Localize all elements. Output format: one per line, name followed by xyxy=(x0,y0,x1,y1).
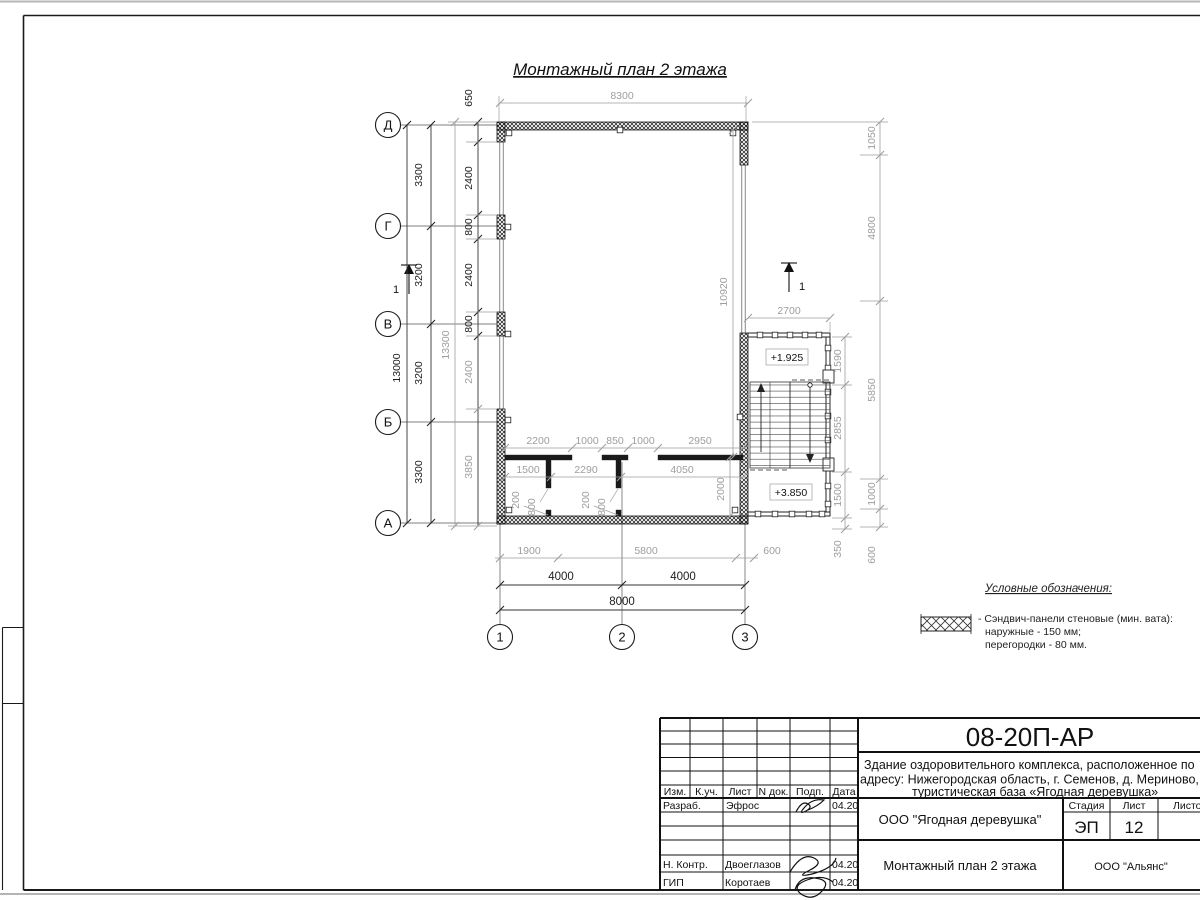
svg-text:2700: 2700 xyxy=(777,305,801,317)
svg-text:3: 3 xyxy=(741,630,748,645)
svg-text:850: 850 xyxy=(606,435,624,447)
svg-text:В: В xyxy=(384,317,393,332)
svg-text:200: 200 xyxy=(510,491,522,509)
section-label-right: 1 xyxy=(799,281,805,293)
svg-text:А: А xyxy=(384,516,393,531)
svg-text:8300: 8300 xyxy=(610,90,634,102)
hdr-list: Лист xyxy=(729,786,752,798)
svg-text:350: 350 xyxy=(832,540,844,558)
svg-text:3300: 3300 xyxy=(413,460,425,484)
svg-text:600: 600 xyxy=(763,545,781,557)
level-lower: +3.850 xyxy=(775,487,808,499)
svg-text:650: 650 xyxy=(463,89,475,107)
project-line3: туристическая база «Ягодная деревушка» xyxy=(912,785,1158,799)
svg-text:5850: 5850 xyxy=(866,378,878,402)
hdr-listov: Листов xyxy=(1173,800,1200,812)
svg-text:Г: Г xyxy=(384,219,391,234)
svg-text:2400: 2400 xyxy=(463,360,475,384)
svg-text:1590: 1590 xyxy=(832,349,844,373)
hdr-ndok: N док. xyxy=(759,786,789,798)
svg-text:2: 2 xyxy=(618,630,625,645)
legend-heading: Условные обозначения: xyxy=(984,583,1112,595)
level-upper: +1.925 xyxy=(771,352,804,364)
svg-text:13000: 13000 xyxy=(391,353,403,382)
legend-line3: перегородки - 80 мм. xyxy=(985,639,1087,651)
row1-role: Разраб. xyxy=(663,800,701,812)
svg-text:800: 800 xyxy=(463,315,475,333)
svg-text:2400: 2400 xyxy=(463,263,475,287)
svg-text:3200: 3200 xyxy=(413,361,425,385)
svg-text:2000: 2000 xyxy=(715,477,727,501)
svg-text:800: 800 xyxy=(463,218,475,236)
svg-text:3300: 3300 xyxy=(413,163,425,187)
svg-text:600: 600 xyxy=(866,546,878,564)
svg-text:2290: 2290 xyxy=(574,464,598,476)
hdr-data: Дата xyxy=(832,786,855,798)
hdr-podp: Подп. xyxy=(796,786,824,798)
svg-text:1: 1 xyxy=(496,630,503,645)
client-name: ООО "Ягодная деревушка" xyxy=(879,812,1042,827)
svg-text:800: 800 xyxy=(596,498,608,516)
svg-text:2200: 2200 xyxy=(526,435,550,447)
org-name: ООО "Альянс" xyxy=(1094,861,1168,873)
stage-value: ЭП xyxy=(1074,818,1098,837)
hdr-list2: Лист xyxy=(1123,800,1146,812)
svg-text:Д: Д xyxy=(384,118,393,133)
row1-date: 04.20 xyxy=(832,800,858,812)
sheet-title: Монтажный план 2 этажа xyxy=(883,858,1037,873)
hdr-izm: Изм. xyxy=(664,786,687,798)
svg-text:13300: 13300 xyxy=(440,330,452,359)
row2-date: 04.20 xyxy=(832,859,858,871)
plan-svg: Монтажный план 2 этажа xyxy=(0,0,1200,900)
svg-text:800: 800 xyxy=(526,498,538,516)
project-line1: Здание оздоровительного комплекса, распо… xyxy=(864,758,1195,772)
stair-flights xyxy=(750,380,830,470)
row2-role: Н. Контр. xyxy=(663,859,708,871)
svg-text:1000: 1000 xyxy=(866,482,878,506)
hdr-kuch: К.уч. xyxy=(695,786,718,798)
svg-text:2950: 2950 xyxy=(688,435,712,447)
svg-text:1000: 1000 xyxy=(631,435,655,447)
svg-text:5800: 5800 xyxy=(634,545,658,557)
legend-hatch-swatch xyxy=(921,617,971,631)
svg-text:Б: Б xyxy=(384,415,393,430)
svg-text:1500: 1500 xyxy=(516,464,540,476)
svg-text:2400: 2400 xyxy=(463,166,475,190)
section-label-left: 1 xyxy=(393,284,399,296)
legend-line2: наружные - 150 мм; xyxy=(985,626,1081,638)
svg-text:3850: 3850 xyxy=(463,455,475,479)
svg-text:1050: 1050 xyxy=(866,126,878,150)
svg-text:4000: 4000 xyxy=(670,571,696,583)
svg-text:4050: 4050 xyxy=(670,464,694,476)
svg-text:8000: 8000 xyxy=(609,596,635,608)
svg-text:1900: 1900 xyxy=(517,545,541,557)
page-title: Монтажный план 2 этажа xyxy=(513,60,727,79)
svg-text:3200: 3200 xyxy=(413,263,425,287)
row1-name: Эфрос xyxy=(726,800,759,812)
svg-text:4000: 4000 xyxy=(548,571,574,583)
doc-number: 08-20П-АР xyxy=(966,722,1095,752)
svg-text:1500: 1500 xyxy=(832,483,844,507)
row3-role: ГИП xyxy=(663,877,684,889)
svg-text:1000: 1000 xyxy=(575,435,599,447)
svg-text:200: 200 xyxy=(580,491,592,509)
row3-name: Коротаев xyxy=(725,877,771,889)
svg-text:10920: 10920 xyxy=(718,277,730,306)
sheet-number: 12 xyxy=(1125,818,1144,837)
svg-text:2855: 2855 xyxy=(832,416,844,440)
legend-line1: - Сэндвич-панели стеновые (мин. вата): xyxy=(978,613,1173,625)
svg-text:4800: 4800 xyxy=(866,216,878,240)
row3-date: 04.20 xyxy=(832,877,858,889)
hdr-stadia: Стадия xyxy=(1069,800,1105,812)
drawing-sheet: Монтажный план 2 этажа xyxy=(0,0,1200,900)
row2-name: Двоеглазов xyxy=(725,859,781,871)
